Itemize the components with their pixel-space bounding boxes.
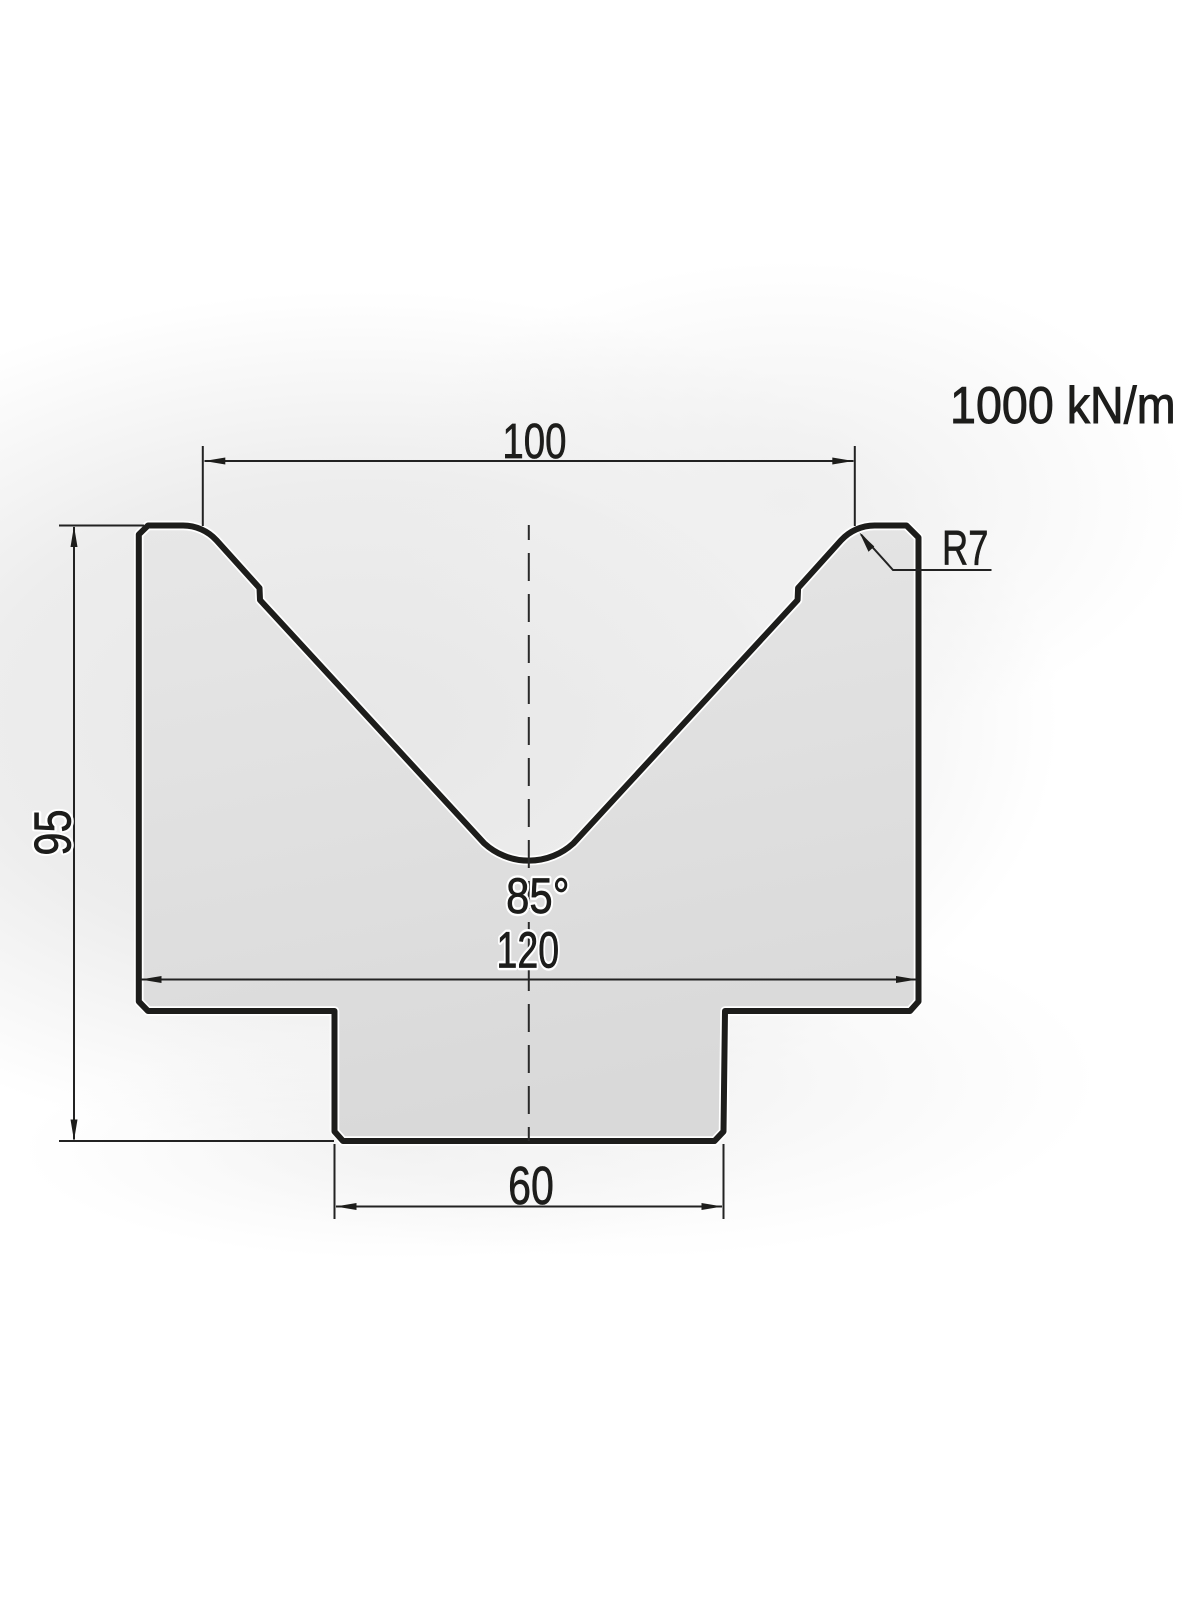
svg-text:85°: 85° xyxy=(506,867,569,923)
svg-text:120: 120 xyxy=(496,922,559,979)
svg-text:100: 100 xyxy=(502,414,566,469)
svg-text:R7: R7 xyxy=(942,521,988,576)
svg-text:1000 kN/m: 1000 kN/m xyxy=(950,378,1176,435)
svg-text:60: 60 xyxy=(508,1157,554,1217)
svg-text:95: 95 xyxy=(24,809,81,855)
